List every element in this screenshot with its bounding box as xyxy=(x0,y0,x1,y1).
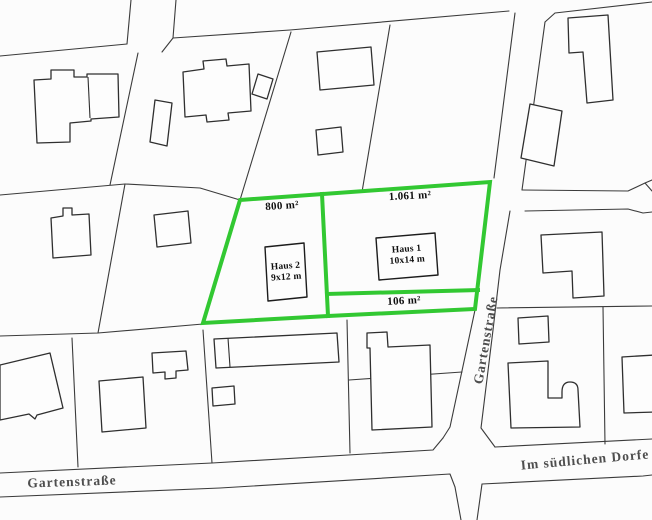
east-street-bottom-edge xyxy=(482,475,652,484)
haus2-label: Haus 2 9x12 m xyxy=(270,261,302,286)
parcel-line-9 xyxy=(203,330,212,463)
parcel-line-12 xyxy=(497,306,652,308)
building-east-l-house xyxy=(541,232,604,298)
building-west-square xyxy=(154,211,191,247)
highlighted-parcels xyxy=(203,182,490,323)
street-label-gartenstrasse-bottom: Gartenstraße xyxy=(27,472,117,491)
boundary-top-middle xyxy=(173,11,509,38)
road-left-edge-upper xyxy=(494,13,515,178)
side-street-fork xyxy=(645,183,652,191)
building-ne-shed xyxy=(521,104,562,166)
building-north-middle xyxy=(317,47,374,90)
south-road-left-edge xyxy=(455,487,461,520)
parcel-line-1 xyxy=(110,53,138,185)
building-small-rect xyxy=(212,386,235,406)
building-small-square-1 xyxy=(316,127,343,155)
road-left-edge-lower xyxy=(443,310,475,438)
parcel-line-4 xyxy=(98,184,125,333)
boundary-top-left xyxy=(0,44,127,56)
building-se-u-house xyxy=(508,361,580,428)
building-ne-flag xyxy=(568,15,613,103)
parcel-area-label-800: 800 m² xyxy=(265,199,299,213)
parcel-divider-horizontal-green xyxy=(327,290,478,294)
parcel-line-3 xyxy=(125,184,240,200)
parcel-divider-vertical-green xyxy=(322,194,328,316)
building-east-square xyxy=(518,316,549,344)
parcel-line-5 xyxy=(0,324,203,336)
parcel-area-label-1061: 1.061 m² xyxy=(389,189,432,203)
side-street-bottom-edge xyxy=(525,209,652,213)
site-plan-map: 800 m² 1.061 m² 106 m² Haus 2 9x12 m Hau… xyxy=(0,0,652,520)
cadastral-linework xyxy=(0,0,652,520)
south-road-right-edge xyxy=(477,484,482,520)
bottom-street-top-edge xyxy=(0,438,443,473)
building-west-house xyxy=(51,208,91,258)
buildings xyxy=(0,15,652,432)
parcel-line-13 xyxy=(603,307,605,444)
building-sw-square xyxy=(99,377,146,432)
driveway-left-edge xyxy=(127,0,131,44)
building-north-house xyxy=(183,59,251,122)
building-small-shed-1 xyxy=(150,100,172,146)
building-small-shed-2 xyxy=(252,74,273,99)
building-sw-irregular xyxy=(0,353,63,420)
building-long-barn xyxy=(214,333,339,368)
building-sw-small xyxy=(152,351,188,379)
parcel-line-6 xyxy=(240,32,291,200)
parcel-line-8 xyxy=(72,338,78,467)
haus2-dimensions: 9x12 m xyxy=(271,272,302,285)
parcel-outline-green xyxy=(203,182,490,323)
parcel-line-10 xyxy=(347,320,350,453)
building-se-edge xyxy=(622,355,652,413)
parcel-line-2 xyxy=(0,184,125,195)
haus1-label: Haus 1 10x14 m xyxy=(389,243,426,268)
side-street-top-edge xyxy=(522,180,652,191)
parcel-area-label-106: 106 m² xyxy=(387,294,421,308)
driveway-right-edge xyxy=(162,0,176,52)
east-street-top-edge xyxy=(495,439,652,447)
building-nw-house xyxy=(34,70,119,143)
building-south-flag xyxy=(367,332,432,430)
